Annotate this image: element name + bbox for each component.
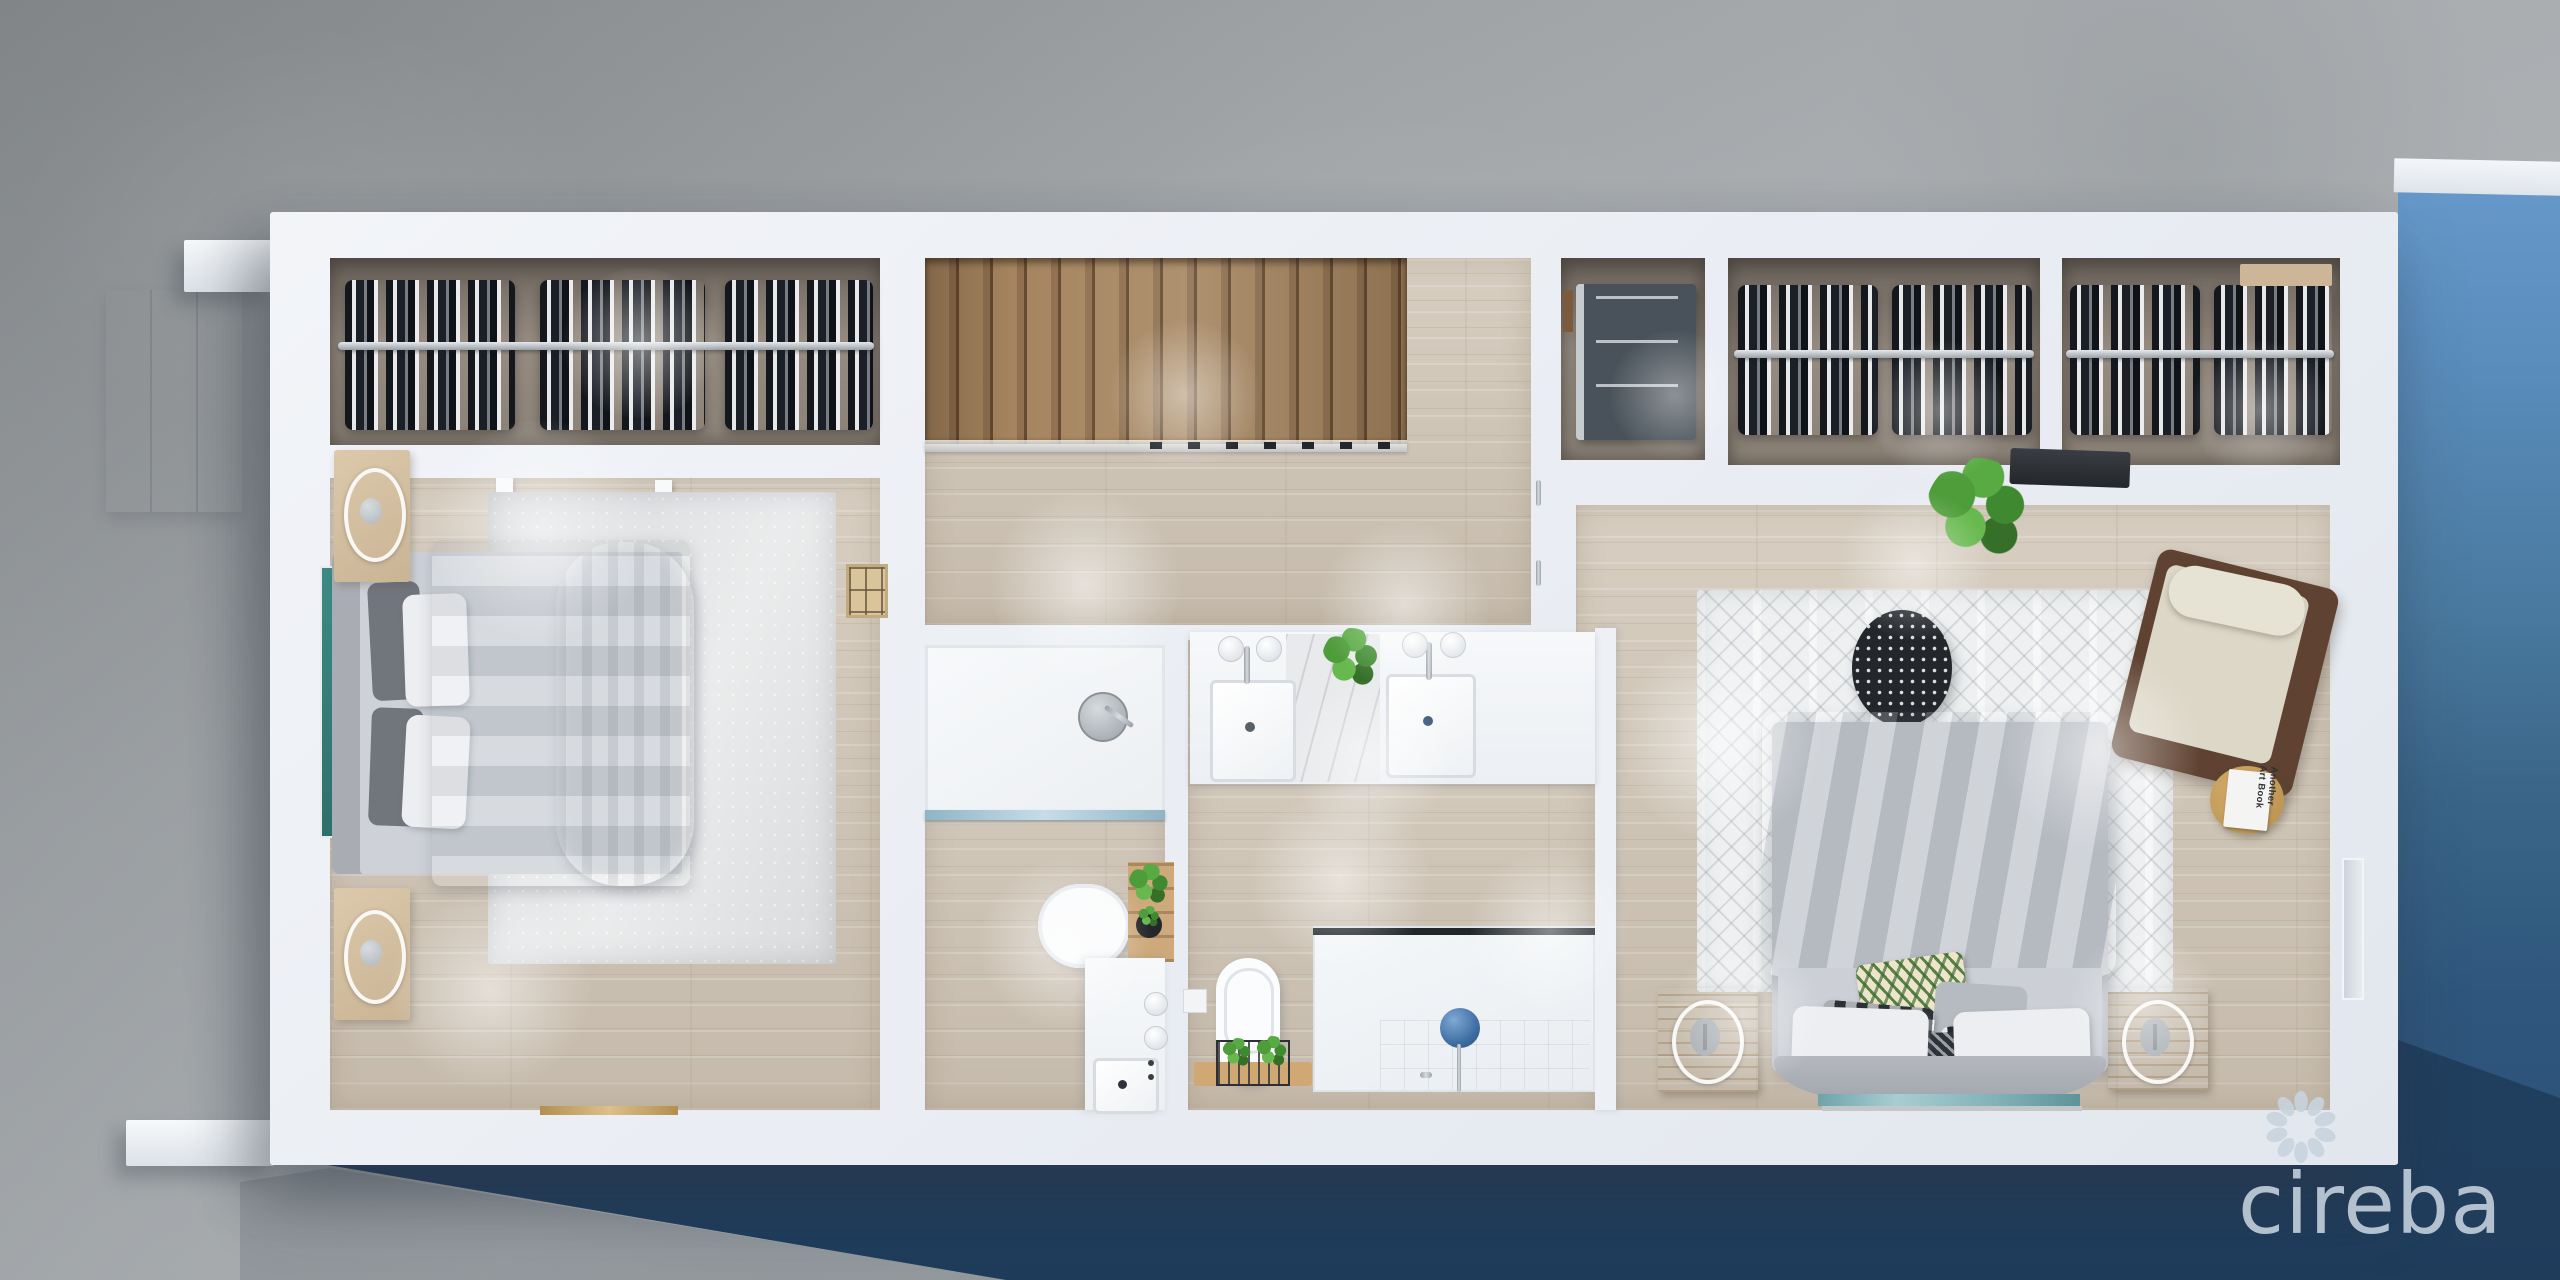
- master-shower-pipe: [1457, 1044, 1461, 1092]
- closet-b-shelf: [2240, 264, 2332, 286]
- bathroom2-glass-partition: [925, 810, 1165, 820]
- bedroom2-nightstand-bottom: [334, 888, 410, 1020]
- bedroom2-closet-rail: [338, 342, 874, 350]
- lamp-knob: [360, 498, 382, 524]
- master-duvet: [1762, 712, 2116, 976]
- side-table: Another Art Book: [2210, 766, 2284, 834]
- master-bath-faucet-left: [1244, 646, 1250, 684]
- floorplan-render: Another Art Book: [0, 0, 2560, 1280]
- master-bath-sink-right: [1386, 674, 1476, 778]
- stair-railing-posts: [1150, 442, 1407, 449]
- bedroom2-bed-headboard: [332, 552, 362, 874]
- bedroom2-closet-clothes-2: [540, 280, 705, 430]
- hall-door-handle-2: [1536, 560, 1541, 586]
- bathroom2-shower: [925, 645, 1165, 813]
- bath-bedroom-wall: [1595, 628, 1616, 1110]
- master-shower-valve: [1420, 1072, 1432, 1078]
- exterior-concrete-pad: [106, 290, 242, 512]
- book-title: Another Art Book: [2252, 765, 2279, 823]
- cireba-watermark: cireba: [2238, 1086, 2558, 1256]
- closet-a-clothes-1: [1738, 285, 1878, 435]
- master-shower-head: [1440, 1008, 1480, 1048]
- master-shower-tile: [1380, 1020, 1590, 1090]
- basket-plant-1: [1222, 1038, 1252, 1068]
- master-wall-window: [2342, 858, 2364, 1000]
- master-bath-counter-plant: [1322, 628, 1380, 690]
- bedroom2-closet-clothes-3: [725, 280, 873, 430]
- bathroom2-faucet-dot-2: [1148, 1074, 1154, 1080]
- master-bath-drain-right: [1423, 716, 1433, 726]
- staircase: [925, 258, 1407, 444]
- gold-nightstand-right: [2108, 988, 2208, 1090]
- closet-a-clothes-2: [1892, 285, 2032, 435]
- bathroom2-toilet: [1038, 884, 1130, 968]
- master-bath-lamp-2: [1256, 636, 1282, 662]
- master-bath-lamp-4: [1440, 632, 1466, 658]
- bedroom2-gold-threshold: [540, 1106, 678, 1115]
- cireba-logo-text: cireba: [2238, 1162, 2503, 1246]
- art-book: Another Art Book: [2223, 769, 2273, 831]
- bathroom2-drain: [1118, 1080, 1127, 1089]
- master-bath-paper-holder: [1184, 990, 1206, 1012]
- bathroom2-sconce-1: [1144, 992, 1168, 1016]
- bathroom2-sconce-2: [1144, 1026, 1168, 1050]
- bedroom2-nightstand-top: [334, 450, 410, 582]
- basket-plant-2: [1256, 1036, 1288, 1068]
- lamp-knob: [360, 940, 382, 966]
- bedroom2-blanket-roll: [556, 542, 694, 886]
- closet-b-rail: [2066, 350, 2334, 358]
- bathroom2-pot-plant: [1138, 906, 1160, 928]
- pool-edge-wall: [2394, 158, 2560, 196]
- round-ottoman: [1852, 610, 1952, 726]
- master-bath-lamp-1: [1218, 636, 1244, 662]
- master-glass-door: [1818, 1094, 2080, 1106]
- hall-door-handle-1: [1536, 480, 1541, 506]
- exterior-ledge-top: [184, 240, 274, 292]
- master-bath-drain-left: [1245, 722, 1255, 732]
- closet-b-clothes-2: [2214, 285, 2332, 435]
- master-shower-glass-edge: [1313, 928, 1595, 935]
- washer-glass-door: [1596, 296, 1678, 428]
- bedroom2-wall-panel: [846, 564, 888, 618]
- lamp-stem: [1703, 1024, 1707, 1050]
- exterior-ledge-bottom: [126, 1120, 274, 1166]
- bathroom2-shelf-plant: [1128, 864, 1170, 906]
- wall-console: [2009, 448, 2130, 488]
- master-door-track: [1822, 1106, 2082, 1111]
- closet-a-rail: [1734, 350, 2034, 358]
- washer-chrome-edge: [1576, 284, 1584, 440]
- washer-dryer-unit: [1576, 284, 1696, 440]
- closet-b-clothes-1: [2070, 285, 2200, 435]
- lamp-stem: [2153, 1024, 2157, 1050]
- bathroom2-faucet-dot-1: [1148, 1060, 1154, 1066]
- master-bath-lamp-3: [1402, 632, 1428, 658]
- bedroom2-closet-clothes-1: [345, 280, 515, 430]
- laundry-side-item: [1563, 290, 1573, 332]
- gold-nightstand-left: [1658, 988, 1758, 1092]
